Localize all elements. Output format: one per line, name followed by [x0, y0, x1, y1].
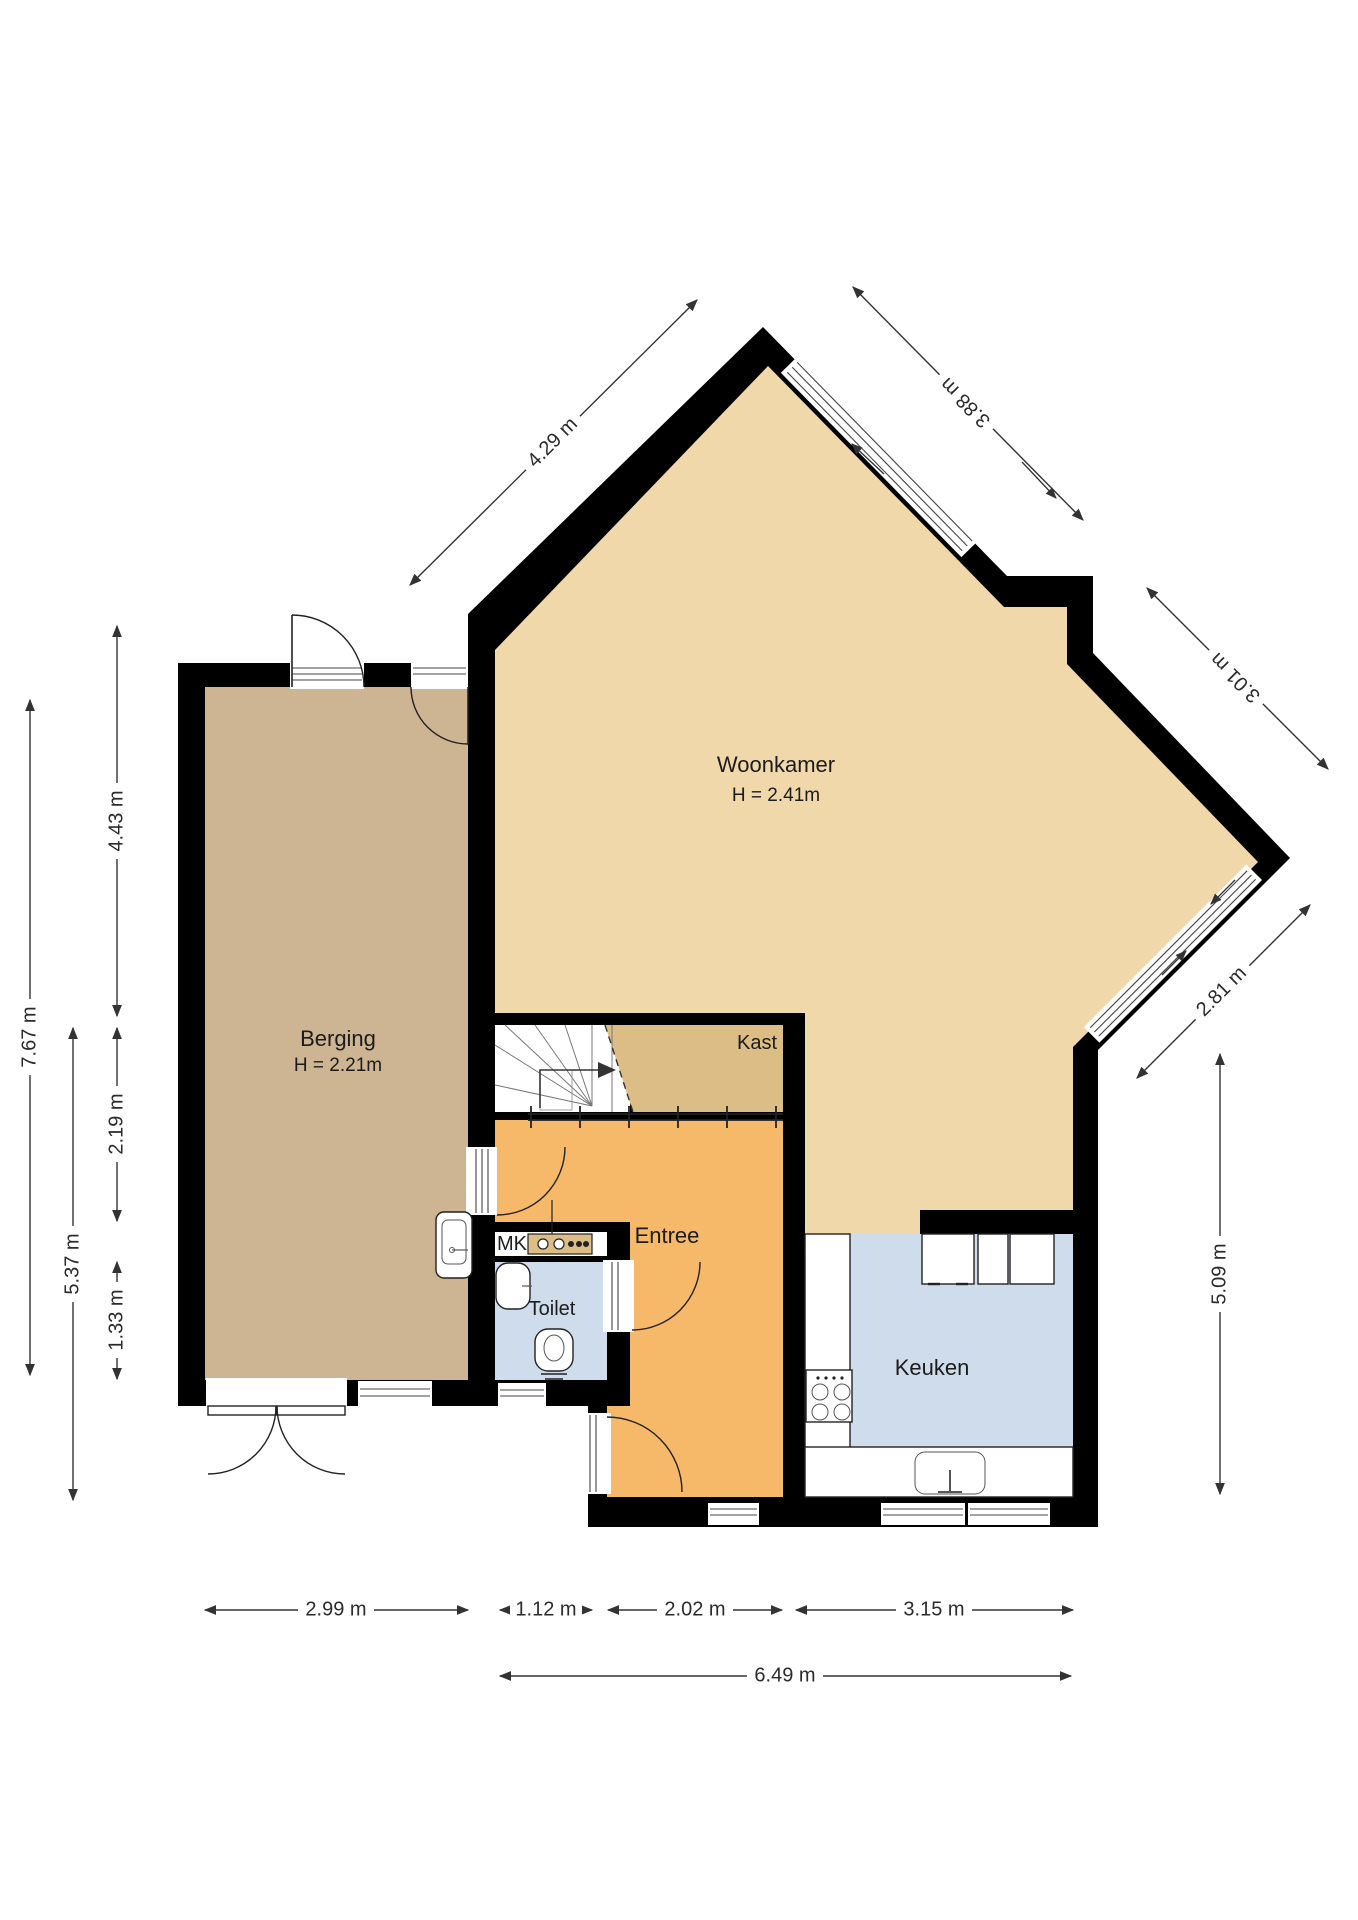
- svg-text:1.33 m: 1.33 m: [105, 1289, 127, 1350]
- entree-window: [708, 1503, 759, 1525]
- svg-text:2.99 m: 2.99 m: [305, 1598, 366, 1620]
- berging-window: [358, 1381, 432, 1408]
- stove-icon: [806, 1370, 852, 1422]
- floor-plan-page: Woonkamer H = 2.41m Berging H = 2.21m En…: [0, 0, 1358, 1920]
- room-label-woonkamer: Woonkamer: [717, 752, 835, 777]
- svg-text:1.12 m: 1.12 m: [515, 1598, 576, 1620]
- kitchen-counter-bottom: [805, 1447, 1073, 1497]
- svg-text:6.49 m: 6.49 m: [754, 1664, 815, 1686]
- svg-text:2.19 m: 2.19 m: [105, 1093, 127, 1154]
- keuken-window-left: [881, 1503, 965, 1525]
- svg-text:2.02 m: 2.02 m: [664, 1598, 725, 1620]
- kitchen-appliances: [922, 1234, 1054, 1284]
- floor-plan-canvas: Woonkamer H = 2.41m Berging H = 2.21m En…: [0, 0, 1358, 1920]
- room-height-berging: H = 2.21m: [294, 1055, 382, 1076]
- room-label-meterkast: MK: [497, 1233, 528, 1255]
- keuken-window-right: [968, 1503, 1050, 1525]
- room-label-keuken: Keuken: [895, 1355, 970, 1380]
- room-label-kast: Kast: [737, 1032, 777, 1054]
- svg-text:5.09 m: 5.09 m: [1208, 1243, 1230, 1304]
- svg-text:5.37 m: 5.37 m: [61, 1233, 83, 1294]
- svg-text:7.67 m: 7.67 m: [18, 1006, 40, 1067]
- berging-sink-icon: [436, 1212, 472, 1278]
- room-label-toilet: Toilet: [529, 1298, 576, 1320]
- room-label-berging: Berging: [300, 1026, 376, 1051]
- svg-text:3.15 m: 3.15 m: [903, 1598, 964, 1620]
- room-label-entree: Entree: [635, 1223, 700, 1248]
- svg-text:4.43 m: 4.43 m: [105, 790, 127, 851]
- woonkamer-keuken-passage: [805, 1210, 920, 1236]
- toilet-sink-icon: [496, 1263, 532, 1309]
- room-height-woonkamer: H = 2.41m: [732, 785, 820, 806]
- toilet-window: [498, 1383, 546, 1408]
- dim-bottom-hall: 1.12 m: [500, 1598, 592, 1622]
